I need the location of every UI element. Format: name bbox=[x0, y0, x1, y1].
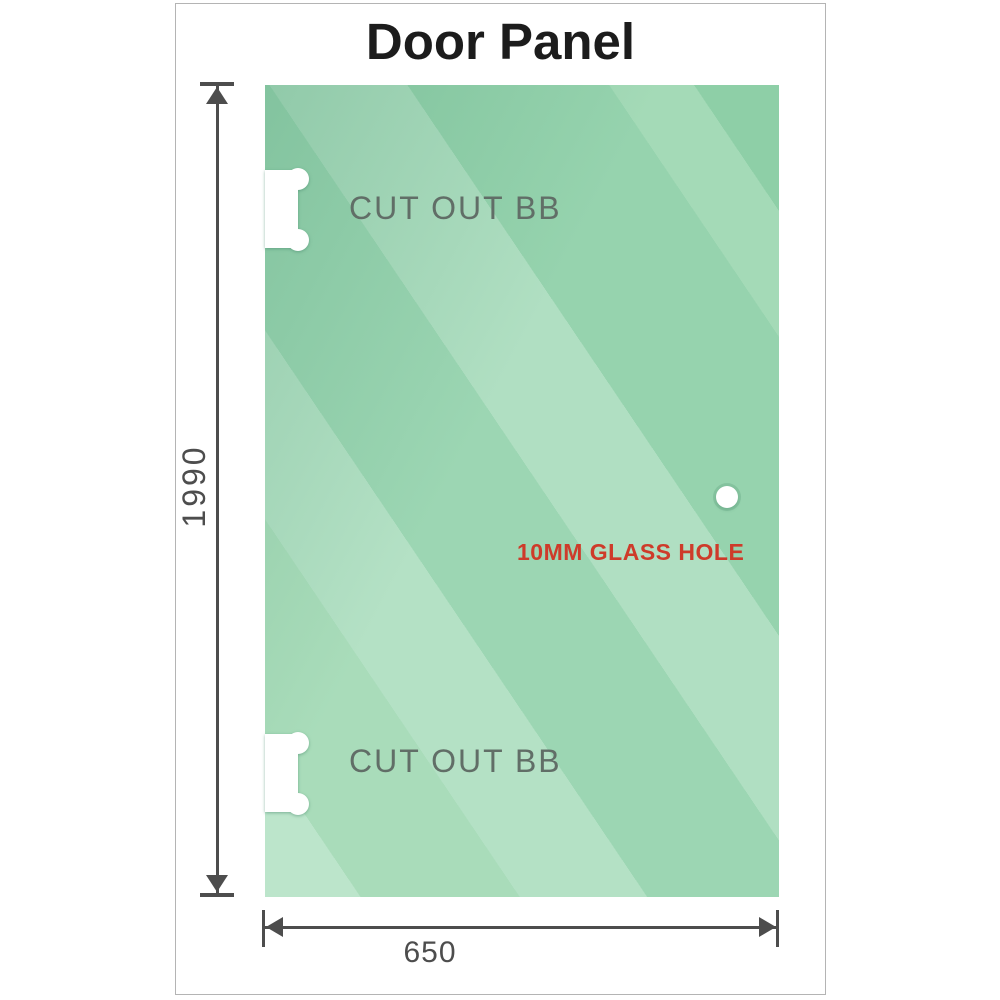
arrow-right-icon bbox=[759, 917, 776, 937]
dimension-cap-right bbox=[776, 910, 779, 947]
hinge-cutout-bottom-icon bbox=[265, 732, 311, 818]
arrow-down-icon bbox=[206, 875, 228, 892]
height-dimension-value: 1990 bbox=[176, 426, 210, 546]
hinge-cutout-top-icon bbox=[265, 168, 311, 254]
glass-hole-icon bbox=[716, 486, 738, 508]
diagram-title: Door Panel bbox=[175, 12, 826, 71]
width-dimension-value: 650 bbox=[380, 936, 480, 970]
width-dimension-line bbox=[265, 926, 777, 929]
height-dimension-line bbox=[216, 86, 219, 893]
cutout-label-top: CUT OUT BB bbox=[349, 188, 562, 228]
cutout-label-bottom: CUT OUT BB bbox=[349, 741, 562, 781]
glass-panel: CUT OUT BB CUT OUT BB 10MM GLASS HOLE bbox=[265, 85, 779, 897]
diagram-canvas: Door Panel CUT OUT BB CUT OUT BB 10MM GL… bbox=[0, 0, 1000, 1000]
glass-hole-label: 10MM GLASS HOLE bbox=[517, 539, 744, 566]
dimension-cap-bottom bbox=[200, 893, 234, 897]
